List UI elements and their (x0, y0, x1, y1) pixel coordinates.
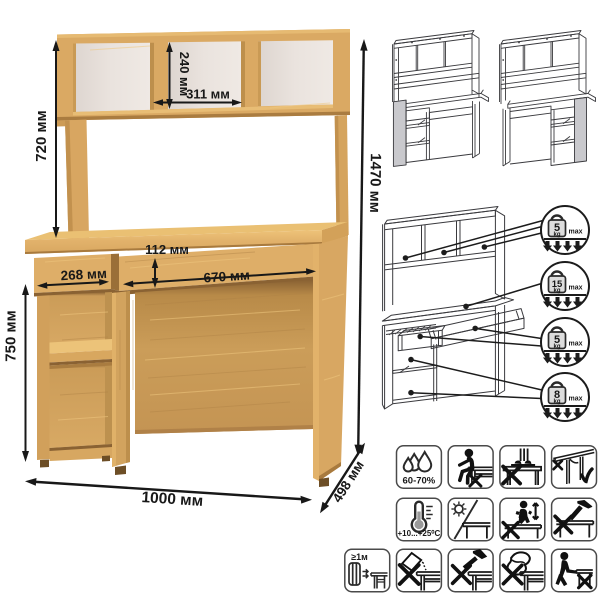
svg-text:max: max (568, 341, 582, 348)
svg-text:720 мм: 720 мм (33, 110, 50, 161)
svg-text:max: max (568, 229, 582, 236)
svg-text:1000 мм: 1000 мм (141, 489, 204, 510)
svg-text:750 мм: 750 мм (3, 310, 20, 361)
svg-text:kg: kg (553, 232, 560, 238)
svg-text:kg: kg (553, 399, 560, 405)
svg-text:max: max (568, 285, 582, 292)
svg-text:112 мм: 112 мм (145, 242, 189, 257)
svg-text:311 мм: 311 мм (186, 87, 230, 102)
svg-text:kg: kg (553, 288, 560, 294)
svg-text:≥1м: ≥1м (351, 552, 368, 562)
svg-text:max: max (568, 396, 582, 403)
svg-text:kg: kg (553, 344, 560, 350)
svg-text:670 мм: 670 мм (203, 267, 250, 285)
svg-text:+10...+25⁰C: +10...+25⁰C (398, 529, 441, 538)
svg-text:1470 мм: 1470 мм (366, 153, 384, 213)
svg-text:60-70%: 60-70% (403, 476, 436, 487)
svg-text:268 мм: 268 мм (60, 266, 107, 283)
